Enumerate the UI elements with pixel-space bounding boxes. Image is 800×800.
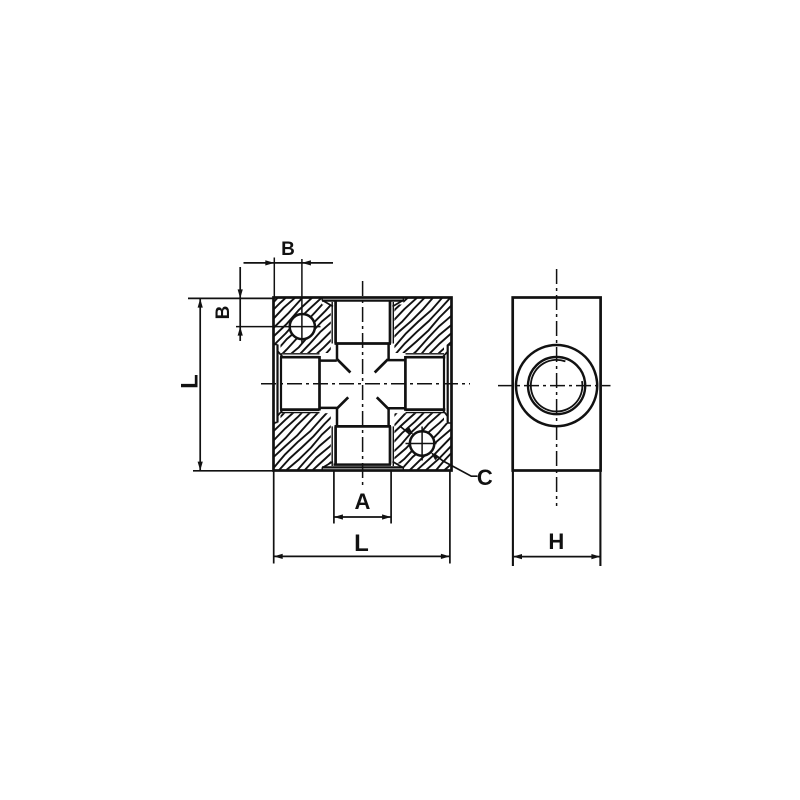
svg-text:C: C <box>477 465 493 490</box>
svg-text:A: A <box>354 489 370 514</box>
svg-text:B: B <box>281 239 295 260</box>
svg-text:B: B <box>213 306 234 320</box>
svg-text:H: H <box>548 529 564 554</box>
svg-text:L: L <box>354 530 369 557</box>
svg-text:L: L <box>177 374 204 389</box>
